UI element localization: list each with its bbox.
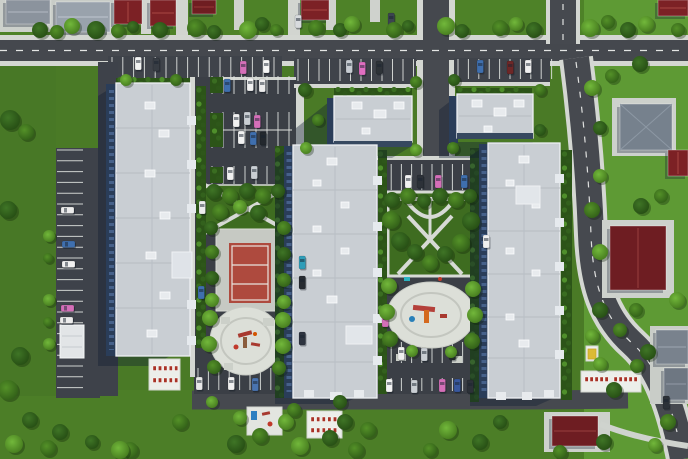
bush [356, 91, 361, 96]
bush [566, 242, 571, 247]
bush [562, 249, 567, 254]
bush [566, 270, 571, 275]
roof-unit [145, 102, 155, 109]
tree [640, 344, 656, 360]
tree [448, 74, 460, 86]
pad-equipment [590, 377, 593, 382]
car-windshield [455, 382, 460, 385]
pad-equipment [169, 378, 172, 383]
tree [233, 411, 247, 425]
tree [439, 421, 457, 439]
tree [467, 307, 483, 323]
tree [601, 15, 615, 29]
roof-unit [506, 314, 514, 320]
bush [566, 158, 571, 163]
car-windshield [253, 381, 258, 384]
tree [291, 437, 309, 455]
car-windshield [241, 64, 246, 67]
tree [239, 21, 257, 39]
tree [410, 76, 422, 88]
roof-unit [484, 126, 492, 132]
tree [633, 198, 649, 214]
tree [472, 434, 488, 450]
tree [275, 312, 291, 328]
bush [196, 227, 201, 232]
bush [566, 382, 571, 387]
roof-unit [519, 340, 529, 347]
pad-equipment [634, 377, 637, 382]
tree [120, 74, 132, 86]
bush [562, 277, 567, 282]
tree [50, 25, 64, 39]
tree [271, 184, 285, 198]
tree [462, 212, 480, 230]
roof-unit [514, 100, 524, 107]
car [228, 377, 235, 390]
bush [382, 298, 387, 303]
car-windshield [399, 350, 404, 353]
pad-equipment [605, 377, 608, 382]
entrance-canopy [555, 174, 564, 183]
car [421, 348, 428, 361]
car-windshield [664, 399, 669, 402]
bush [342, 91, 347, 96]
car-windshield [462, 178, 467, 181]
tree [584, 202, 600, 218]
car [233, 114, 240, 127]
bush [196, 87, 201, 92]
pad-equipment [317, 428, 320, 433]
bush [471, 87, 476, 92]
bush [196, 185, 201, 190]
tree [250, 205, 266, 221]
car-windshield [360, 65, 365, 68]
tree [605, 69, 619, 83]
building1-entrance-canopy [172, 252, 192, 278]
tree [584, 80, 600, 96]
pad-equipment [585, 377, 588, 382]
building1-roof [116, 83, 190, 356]
tree [465, 281, 481, 297]
bush [566, 256, 571, 261]
bush [562, 207, 567, 212]
car [62, 261, 75, 268]
play-equipment [424, 310, 429, 323]
tree [386, 22, 402, 38]
car [405, 175, 412, 188]
tree [201, 336, 217, 352]
car-windshield [422, 351, 427, 354]
tree [0, 110, 20, 130]
tree [423, 443, 437, 457]
bush [562, 319, 567, 324]
car-windshield [300, 279, 305, 282]
entrance-canopy [522, 392, 532, 400]
roof-unit [341, 248, 349, 254]
tree [287, 403, 301, 417]
bush [457, 87, 462, 92]
pad-equipment [629, 377, 632, 382]
car-windshield [261, 135, 266, 138]
entrance-canopy [496, 392, 506, 400]
bush [212, 114, 217, 119]
roof-unit [147, 330, 157, 337]
car-windshield [64, 208, 67, 213]
tree [493, 415, 507, 429]
entrance-canopy [373, 176, 382, 185]
car [135, 57, 142, 70]
car [227, 167, 234, 180]
sidewalk [454, 82, 550, 86]
bush [562, 165, 567, 170]
tree [22, 412, 38, 428]
tree [417, 194, 431, 208]
play-equipment [243, 337, 247, 348]
bush [562, 361, 567, 366]
sidewalk [294, 84, 416, 88]
bush [196, 325, 201, 330]
pad-equipment [595, 377, 598, 382]
car [153, 58, 160, 71]
roof-unit [313, 180, 321, 186]
car [61, 305, 74, 312]
car [507, 61, 514, 74]
bush [378, 263, 383, 268]
bush [566, 228, 571, 233]
car-windshield [406, 178, 411, 181]
parking-west [56, 148, 100, 398]
tree [233, 200, 247, 214]
car [346, 60, 353, 73]
parking-north-2 [294, 58, 416, 84]
tree [660, 414, 676, 430]
bush [159, 77, 164, 82]
bush [378, 165, 383, 170]
play-equipment [404, 277, 410, 281]
tree [5, 435, 23, 453]
tree [277, 221, 291, 235]
roof-unit [352, 102, 362, 109]
car-windshield [200, 204, 205, 207]
car-windshield [347, 63, 352, 66]
bush [382, 270, 387, 275]
bench-pad [263, 318, 274, 326]
car [663, 396, 670, 409]
tree [382, 331, 398, 347]
tree [308, 20, 324, 36]
car-windshield [63, 318, 66, 323]
tree [534, 124, 546, 136]
car [196, 377, 203, 390]
car-windshield [468, 383, 473, 386]
sport-court [229, 243, 271, 303]
building2-entrance-canopy [346, 326, 372, 344]
car [299, 256, 306, 269]
car [411, 380, 418, 393]
tree [212, 204, 228, 220]
bush [200, 248, 205, 253]
roof-unit [494, 108, 506, 116]
entrance-canopy [555, 218, 564, 227]
car [376, 61, 383, 74]
roof-unit [327, 296, 337, 303]
tree [638, 16, 654, 32]
tree [312, 114, 324, 126]
car [299, 332, 306, 345]
roof-unit [327, 158, 337, 165]
bush [499, 87, 504, 92]
play-equipment [440, 314, 447, 318]
car [62, 241, 75, 248]
utility-pad-1 [149, 359, 180, 390]
pad-equipment [158, 378, 161, 383]
tree [360, 422, 376, 438]
play-equipment [409, 316, 415, 322]
car-windshield [296, 18, 301, 21]
driveway [370, 0, 380, 22]
car [359, 62, 366, 75]
pad-equipment [175, 378, 178, 383]
bush [196, 241, 201, 246]
tree [337, 414, 353, 430]
site-plan-canvas [0, 0, 688, 459]
bush [216, 135, 221, 140]
roof-unit [532, 270, 540, 276]
pad-equipment [328, 417, 331, 422]
tree [344, 16, 360, 32]
bush [562, 389, 567, 394]
bush [562, 333, 567, 338]
bush [200, 108, 205, 113]
tree [205, 293, 219, 307]
tree [406, 345, 418, 357]
tree [585, 329, 599, 343]
bush [566, 200, 571, 205]
pad-equipment [624, 377, 627, 382]
tree [207, 25, 221, 39]
car [247, 78, 254, 91]
tree [172, 414, 188, 430]
bush [378, 235, 383, 240]
tree [407, 244, 423, 260]
car-windshield [229, 380, 234, 383]
tree [43, 230, 55, 242]
bush [562, 291, 567, 296]
tree [298, 83, 312, 97]
tree [272, 361, 286, 375]
tree [437, 17, 455, 35]
car [467, 380, 474, 393]
tree [534, 84, 546, 96]
pad-equipment [153, 378, 156, 383]
car [435, 175, 442, 188]
car-windshield [199, 289, 204, 292]
tree [606, 382, 622, 398]
tree [206, 184, 222, 200]
bush [200, 332, 205, 337]
roof-unit [313, 226, 321, 232]
play-equipment [234, 345, 239, 350]
tree [620, 22, 636, 38]
tree [277, 273, 291, 287]
tree [463, 189, 477, 203]
entrance-canopy [555, 262, 564, 271]
roof-unit [159, 130, 169, 137]
pad-equipment [164, 366, 167, 371]
bush [200, 304, 205, 309]
tree [277, 295, 291, 309]
bush [349, 87, 354, 92]
roof-unit [160, 292, 170, 299]
car [477, 60, 484, 73]
car-windshield [255, 118, 260, 121]
bush [378, 193, 383, 198]
car-windshield [300, 335, 305, 338]
tree [170, 74, 182, 86]
car-windshield [478, 63, 483, 66]
bush [566, 214, 571, 219]
car-windshield [245, 115, 250, 118]
bush [566, 284, 571, 289]
bush [384, 91, 389, 96]
car [525, 60, 532, 73]
car-windshield [418, 178, 423, 181]
bush [566, 340, 571, 345]
bush [562, 193, 567, 198]
bush [275, 147, 280, 152]
tree [43, 253, 53, 263]
car-windshield [300, 259, 305, 262]
car [61, 207, 74, 214]
pad-equipment [311, 417, 314, 422]
car-windshield [260, 82, 265, 85]
roof-unit [519, 156, 529, 163]
bush [363, 87, 368, 92]
bush [566, 326, 571, 331]
roof-unit [160, 212, 170, 219]
car-windshield [65, 262, 68, 267]
bush [335, 87, 340, 92]
entrance-canopy [304, 390, 314, 398]
building3-entrance-canopy [516, 186, 540, 204]
tree [671, 23, 685, 37]
entrance-canopy [555, 306, 564, 315]
bush [216, 121, 221, 126]
bush [382, 368, 387, 373]
entrance-canopy [187, 160, 196, 169]
tree [270, 24, 282, 36]
entrance-canopy [187, 300, 196, 309]
bush [196, 171, 201, 176]
roof-unit [506, 248, 514, 254]
car-windshield [252, 169, 257, 172]
car [251, 166, 258, 179]
tree [11, 347, 29, 365]
bush [196, 255, 201, 260]
entrance-canopy [187, 204, 196, 213]
car-windshield [526, 63, 531, 66]
car-windshield [389, 16, 394, 19]
tree [111, 24, 125, 38]
bush [382, 172, 387, 177]
car-windshield [234, 117, 239, 120]
bush [212, 168, 217, 173]
roof-unit [394, 102, 404, 109]
play-equipment [268, 422, 273, 427]
pad-equipment [600, 377, 603, 382]
bush [382, 228, 387, 233]
tree [127, 21, 139, 33]
car [240, 61, 247, 74]
tree [239, 183, 255, 199]
car-windshield [440, 382, 445, 385]
tree [111, 441, 129, 459]
tree [204, 221, 218, 235]
tree [40, 440, 56, 456]
tree [206, 396, 218, 408]
tree [252, 428, 268, 444]
pad-equipment [317, 417, 320, 422]
bush [398, 91, 403, 96]
entrance-canopy [373, 222, 382, 231]
tree [205, 245, 219, 259]
tree [277, 247, 291, 261]
roof-unit [472, 100, 482, 107]
car [386, 379, 393, 392]
tree [333, 395, 347, 409]
aerial-site-plan-render [0, 0, 688, 459]
car-windshield [136, 60, 141, 63]
bush [566, 172, 571, 177]
bench-pad [224, 363, 233, 370]
bush [216, 85, 221, 90]
tree [593, 121, 607, 135]
car-windshield [197, 380, 202, 383]
car [260, 132, 267, 145]
car-windshield [154, 61, 159, 64]
bush [382, 186, 387, 191]
tree [202, 310, 218, 326]
car-windshield [248, 81, 253, 84]
entrance-canopy [187, 336, 196, 345]
tree [509, 17, 523, 31]
roof-unit [506, 180, 514, 186]
tree [445, 346, 457, 358]
tree [632, 56, 648, 72]
bush [405, 87, 410, 92]
tree [447, 142, 459, 154]
pad-equipment [614, 377, 617, 382]
car [250, 132, 257, 145]
roof-unit [341, 202, 349, 208]
car-windshield [251, 135, 256, 138]
tree [207, 360, 221, 374]
tree [581, 19, 599, 37]
bush [200, 164, 205, 169]
bush [566, 186, 571, 191]
bush [382, 256, 387, 261]
bush [196, 339, 201, 344]
car [60, 317, 73, 324]
bush [145, 77, 150, 82]
bush [378, 375, 383, 380]
bush [196, 269, 201, 274]
car [254, 115, 261, 128]
tree [654, 189, 668, 203]
bush [212, 78, 217, 83]
tree [410, 144, 422, 156]
tree [381, 278, 397, 294]
